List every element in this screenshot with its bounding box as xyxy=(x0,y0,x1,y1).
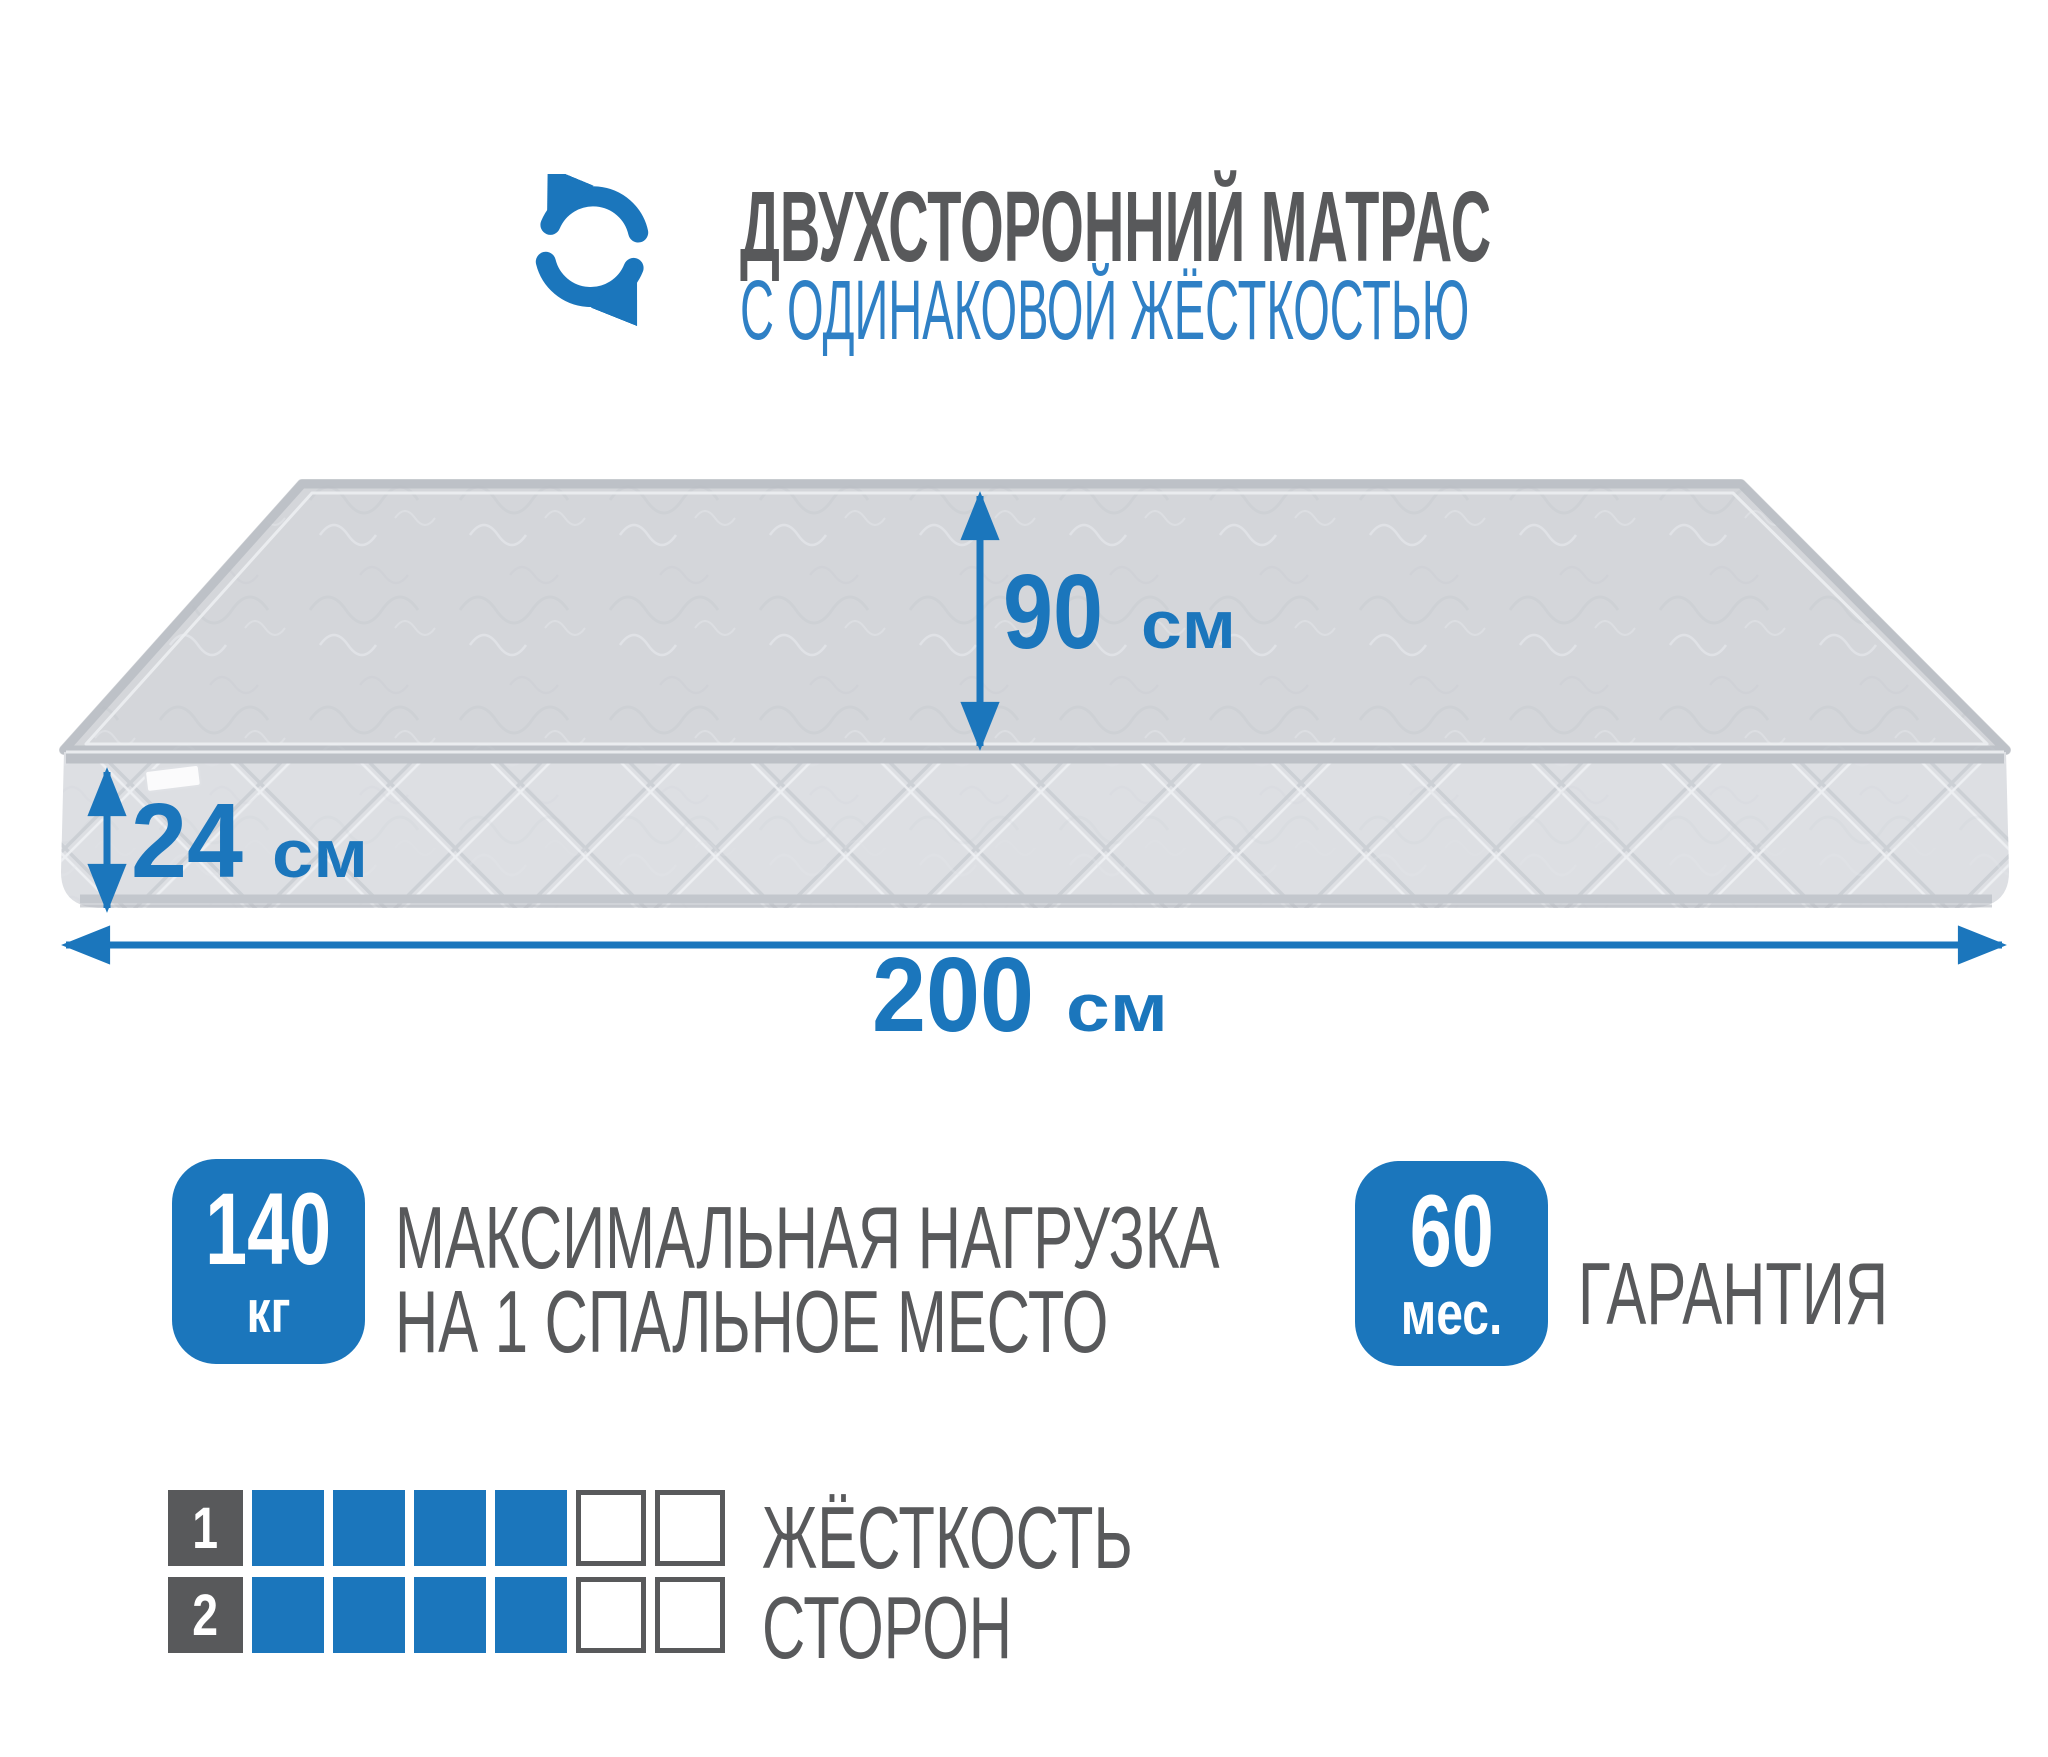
width-dimension-value: 90 xyxy=(1003,553,1103,671)
firmness-label-line1: ЖЁСТКОСТЬ xyxy=(762,1494,1307,1582)
mattress-top-surface xyxy=(64,484,2006,750)
firmness-row-2: 2 xyxy=(168,1577,725,1653)
warranty-label: ГАРАНТИЯ xyxy=(1578,1252,2034,1336)
mattress-infographic: ДВУХСТОРОННИЙ МАТРАС С ОДИНАКОВОЙ ЖЁСТКО… xyxy=(0,0,2048,1757)
warranty-value: 60 xyxy=(1410,1183,1494,1280)
max-load-value: 140 xyxy=(206,1181,332,1278)
mattress-front-face xyxy=(61,752,2009,908)
thickness-dimension-unit: см xyxy=(272,816,368,892)
length-dimension-unit: см xyxy=(1066,970,1168,1046)
mattress-label-tag xyxy=(145,765,201,792)
firmness-cell-empty xyxy=(655,1490,725,1566)
max-load-badge: 140 кг xyxy=(172,1159,365,1364)
max-load-unit: кг xyxy=(246,1282,290,1342)
firmness-cell-filled xyxy=(252,1577,324,1653)
firmness-cell-filled xyxy=(414,1490,486,1566)
firmness-cell-filled xyxy=(495,1490,567,1566)
rotate-arrows-icon xyxy=(508,174,676,328)
width-dimension-unit: см xyxy=(1141,587,1236,663)
warranty-badge: 60 мес. xyxy=(1355,1161,1548,1366)
firmness-cell-filled xyxy=(333,1490,405,1566)
firmness-cell-empty xyxy=(576,1577,646,1653)
firmness-cell-empty xyxy=(576,1490,646,1566)
firmness-row-number: 1 xyxy=(168,1490,243,1566)
firmness-row-number: 2 xyxy=(168,1577,243,1653)
firmness-row-1: 1 xyxy=(168,1490,725,1566)
firmness-cell-filled xyxy=(333,1577,405,1653)
warranty-unit: мес. xyxy=(1401,1284,1503,1344)
firmness-cell-filled xyxy=(495,1577,567,1653)
page-subtitle: С ОДИНАКОВОЙ ЖЁСТКОСТЬЮ xyxy=(740,264,2042,356)
firmness-cell-filled xyxy=(252,1490,324,1566)
thickness-dimension-value: 24 xyxy=(131,782,243,900)
firmness-cell-empty xyxy=(655,1577,725,1653)
length-dimension-value: 200 xyxy=(872,936,1034,1054)
firmness-label-line2: СТОРОН xyxy=(762,1584,1130,1672)
firmness-cell-filled xyxy=(414,1577,486,1653)
